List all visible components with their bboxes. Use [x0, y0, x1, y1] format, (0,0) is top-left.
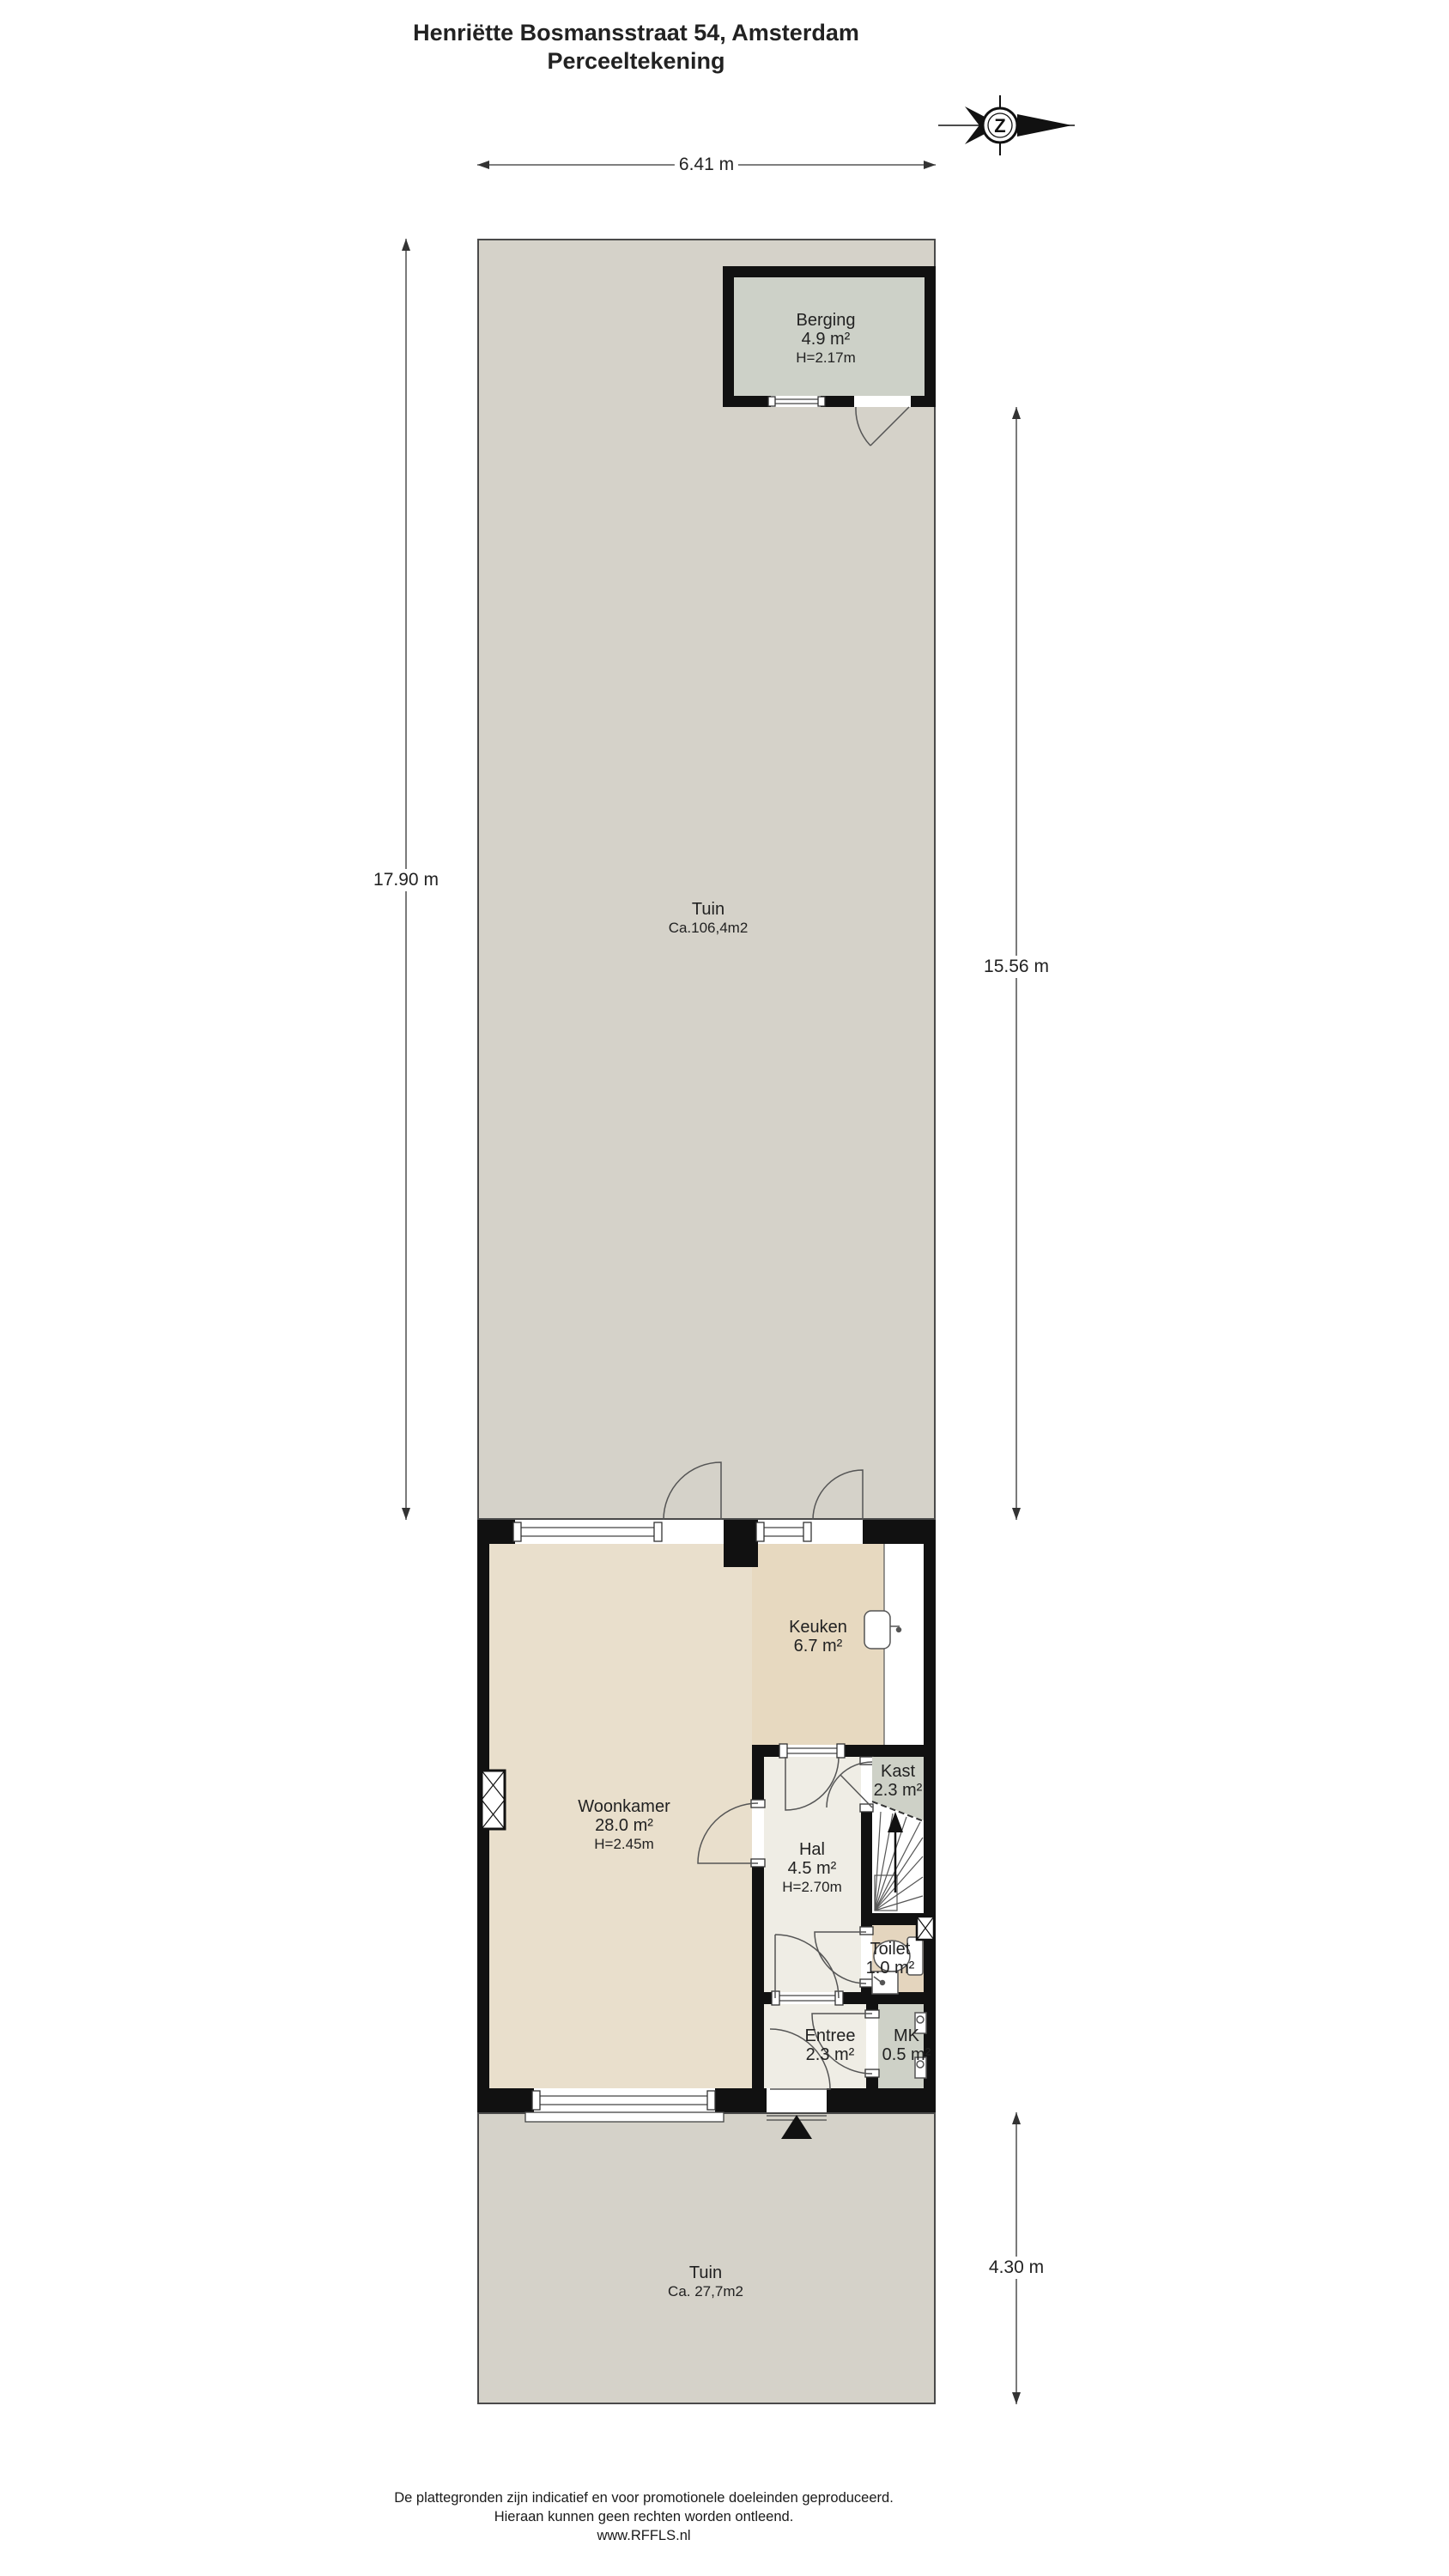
label-hal: Hal 4.5 m² H=2.70m: [782, 1840, 841, 1897]
label-keuken: Keuken 6.7 m²: [789, 1618, 847, 1656]
dim-right-front-label: 4.30 m: [985, 2257, 1048, 2279]
front-garden: [477, 2112, 936, 2404]
facade-pier: [724, 1520, 758, 1567]
title-address: Henriëtte Bosmansstraat 54, Amsterdam: [0, 19, 1272, 47]
kitchen-counter: [884, 1544, 924, 1745]
garden-door-a-opening: [661, 1520, 724, 1544]
back-garden: [477, 239, 936, 1520]
keuken-hal-opening: [783, 1745, 841, 1757]
label-woonkamer: Woonkamer 28.0 m² H=2.45m: [578, 1797, 670, 1854]
kast-door-opening: [861, 1760, 872, 1808]
page-title: Henriëtte Bosmansstraat 54, Amsterdam Pe…: [0, 19, 1272, 76]
footer-line-2: Hieraan kunnen geen rechten worden ontle…: [0, 2507, 1288, 2526]
mk-door-opening: [866, 2014, 878, 2074]
compass-letter: Z: [994, 115, 1005, 137]
footer-line-1: De plattegronden zijn indicatief en voor…: [0, 2488, 1288, 2507]
label-tuin-front: Tuin Ca. 27,7m2: [668, 2263, 743, 2301]
title-subtitle: Perceeltekening: [0, 47, 1272, 76]
garden-window-a: [515, 1520, 661, 1544]
berging-door-opening: [854, 396, 911, 407]
garden-window-b: [758, 1520, 811, 1544]
front-door-opening: [767, 2088, 827, 2112]
label-tuin-back: Tuin Ca.106,4m2: [669, 900, 749, 938]
woonkamer-hal-opening: [752, 1803, 764, 1863]
hal-entree-opening: [775, 1992, 839, 2004]
label-entree: Entree 2.3 m²: [805, 2026, 856, 2064]
label-berging: Berging 4.9 m² H=2.17m: [796, 311, 855, 368]
dim-right-back-label: 15.56 m: [979, 956, 1053, 978]
dim-top-label: 6.41 m: [675, 154, 738, 176]
front-window-opening: [534, 2088, 715, 2112]
label-mk: MK 0.5 m²: [882, 2026, 931, 2064]
footer-disclaimer: De plattegronden zijn indicatief en voor…: [0, 2488, 1288, 2545]
garden-door-b-opening: [811, 1520, 863, 1544]
footer-website: www.RFFLS.nl: [0, 2526, 1288, 2545]
label-kast: Kast 2.3 m²: [874, 1762, 923, 1800]
compass-icon: Z: [938, 95, 1075, 155]
label-toilet: Toilet 1.0 m²: [866, 1940, 915, 1978]
berging-window-opening: [771, 396, 821, 407]
floorplan-page: Henriëtte Bosmansstraat 54, Amsterdam Pe…: [0, 0, 1449, 2576]
dim-left-label: 17.90 m: [369, 869, 443, 891]
